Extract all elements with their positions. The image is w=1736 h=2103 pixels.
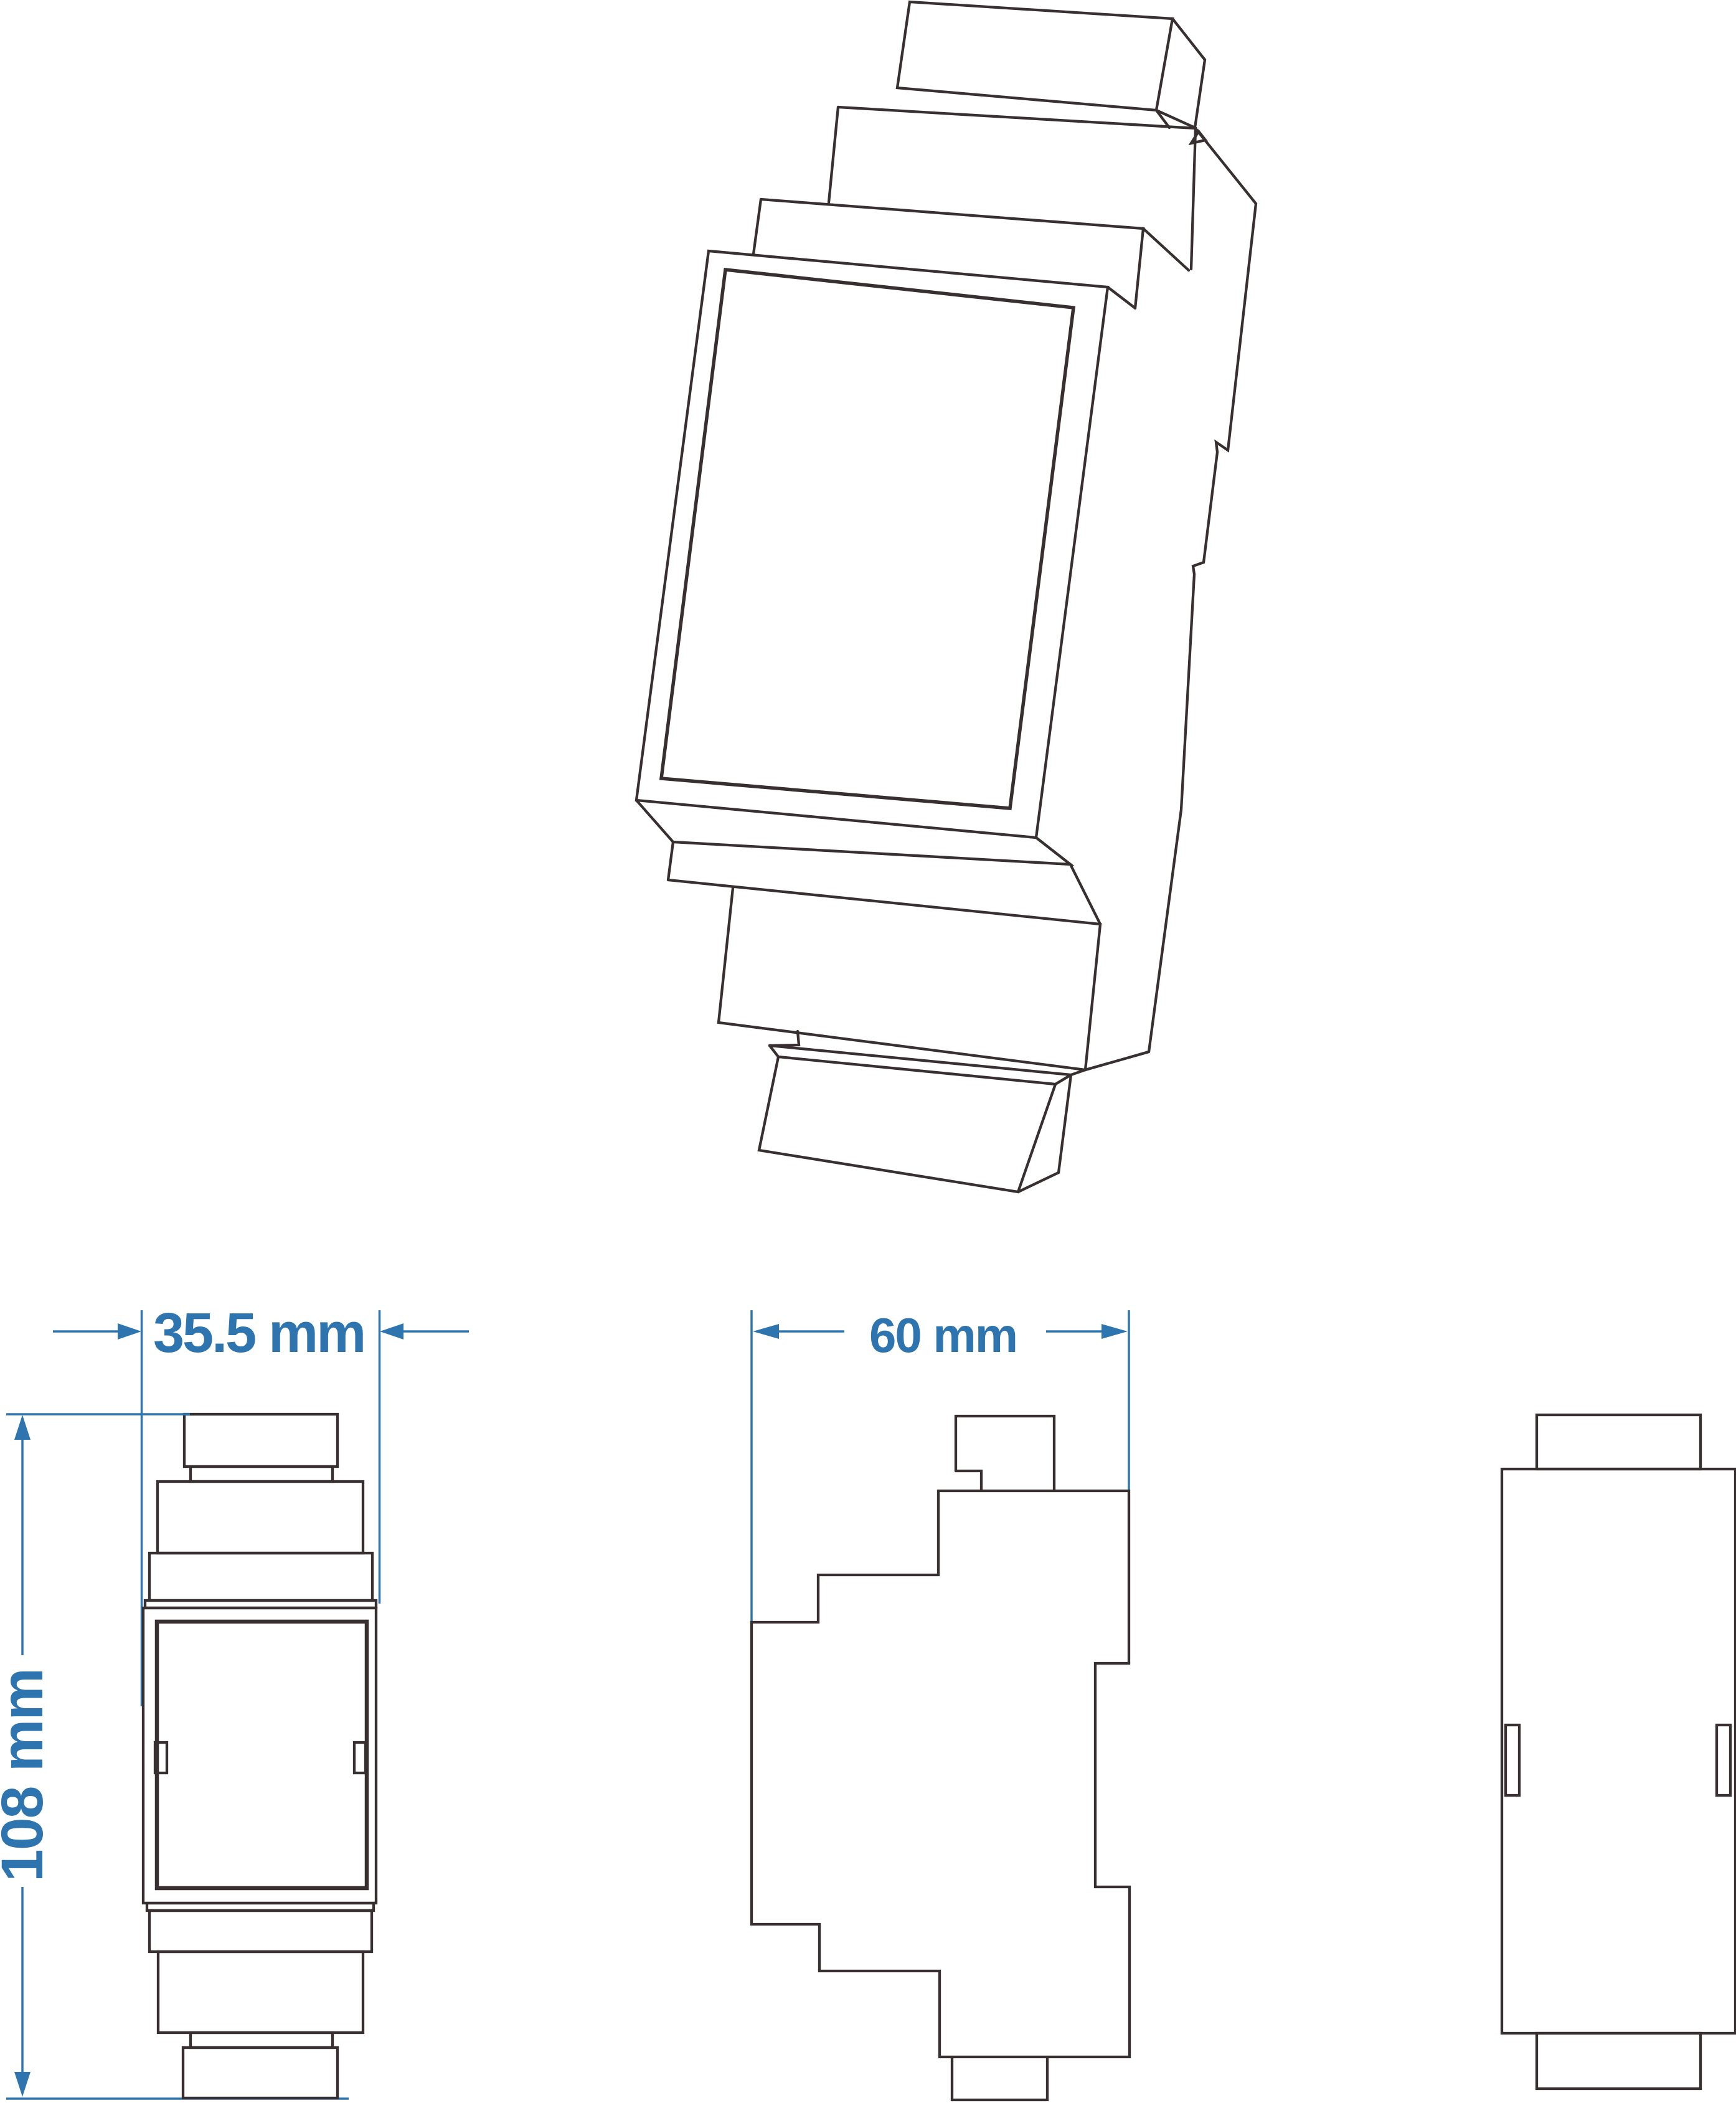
svg-text:60 mm: 60 mm [869,1308,1017,1363]
svg-text:108 mm: 108 mm [0,1669,55,1882]
svg-text:35.5 mm: 35.5 mm [153,1302,364,1364]
